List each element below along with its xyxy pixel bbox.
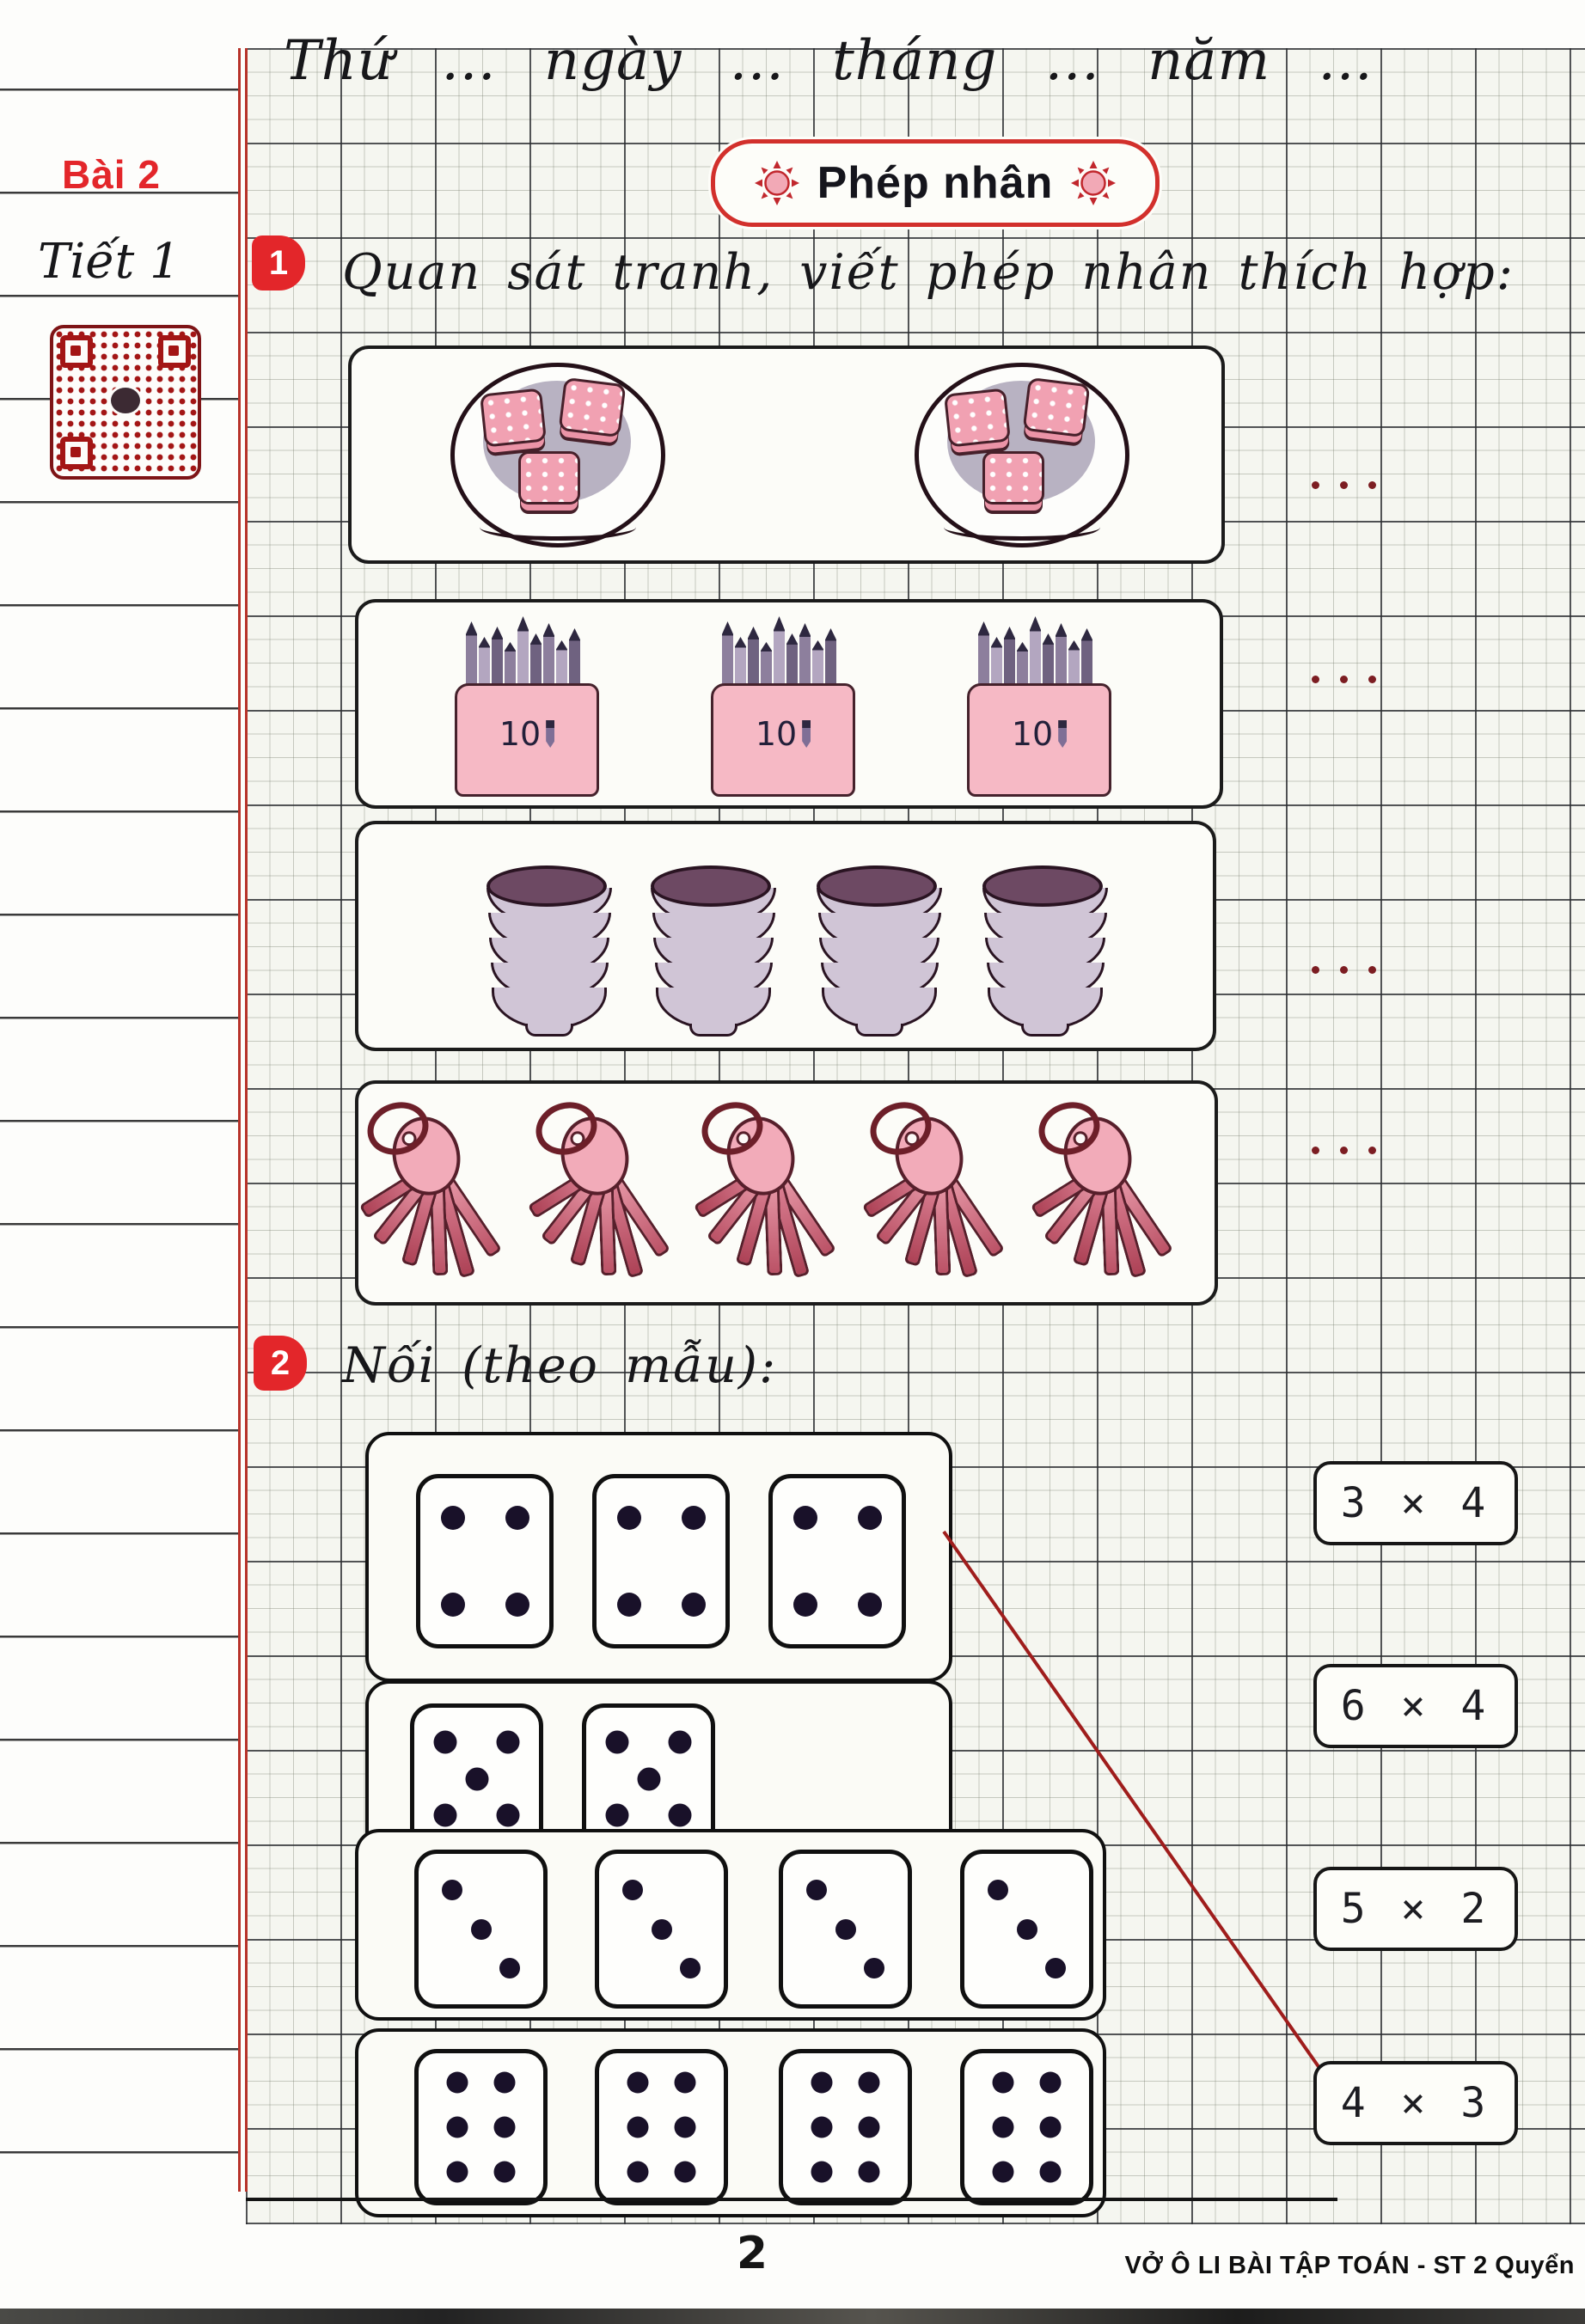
pencil-icon	[1030, 616, 1041, 685]
key-ring-group	[358, 1099, 522, 1281]
die-pip	[811, 2161, 832, 2182]
qr-finder-icon	[158, 335, 191, 368]
die	[414, 1850, 548, 2009]
bowl-opening	[982, 865, 1103, 907]
qr-center-logo	[108, 385, 143, 416]
pencil-box-label: 10	[713, 715, 853, 753]
die-pip	[675, 2072, 696, 2094]
pencil-icon	[825, 628, 836, 685]
die-pip	[494, 2161, 516, 2182]
die-pip	[496, 1730, 519, 1753]
bowl-stack	[482, 865, 611, 1034]
die-pip	[859, 2117, 880, 2138]
pencil-icon	[1056, 623, 1067, 685]
die	[779, 1850, 912, 2009]
answer-dots	[1312, 481, 1376, 489]
dice-row	[355, 1829, 1106, 2021]
pencil-box-label: 10	[970, 715, 1109, 753]
bowl	[656, 988, 771, 1030]
pencil-icon	[786, 633, 798, 685]
pencils-icon	[452, 611, 598, 685]
margin-red-line	[245, 48, 248, 2192]
pencil-glyph-icon	[1058, 720, 1067, 748]
answer-card-label: 3 × 4	[1341, 1479, 1491, 1527]
pencil-icon	[1043, 633, 1054, 685]
qr-finder-icon	[60, 437, 93, 469]
biscuit	[944, 388, 1011, 447]
sun-icon	[1070, 160, 1117, 206]
pencil-icon	[761, 642, 772, 685]
plate	[450, 363, 665, 547]
key-ring-group	[1030, 1099, 1193, 1281]
die-pip	[858, 1593, 882, 1617]
die	[592, 1474, 730, 1648]
die-pip	[793, 1593, 817, 1617]
pencil-box-group: 10	[439, 611, 611, 800]
exercise2-number-badge: 2	[254, 1336, 307, 1391]
exercise1-number-badge: 1	[252, 235, 305, 290]
dice-row	[365, 1432, 952, 1682]
die-pip	[806, 1880, 827, 1900]
die-pip	[442, 1880, 462, 1900]
lesson-label: Bài 2	[62, 151, 161, 198]
pencil-count-label: 10	[499, 715, 541, 753]
die-pip	[441, 1506, 465, 1530]
pencil-icon	[799, 623, 811, 685]
die-pip	[434, 1804, 457, 1827]
die-pip	[992, 2072, 1013, 2094]
key-ring-group	[527, 1099, 690, 1281]
biscuit	[518, 451, 580, 505]
die-pip	[1045, 1958, 1066, 1978]
pencil-icon	[978, 621, 989, 685]
pencil-icon	[774, 616, 785, 685]
pencil-icon	[517, 616, 529, 685]
die-pip	[505, 1506, 529, 1530]
pencil-icon	[1081, 628, 1092, 685]
exercise1-instruction: Quan sát tranh, viết phép nhân thích hợp…	[342, 244, 1515, 301]
die-pip	[617, 1506, 641, 1530]
die-pip	[505, 1593, 529, 1617]
pencil-box-group: 10	[952, 611, 1123, 800]
lesson-title: Phép nhân	[817, 157, 1054, 209]
die-pip	[465, 1767, 488, 1790]
die-pip	[675, 2117, 696, 2138]
die	[416, 1474, 554, 1648]
die-pip	[1040, 2161, 1062, 2182]
die-pip	[446, 2072, 468, 2094]
answer-card: 3 × 4	[1313, 1461, 1518, 1545]
bowl	[988, 988, 1103, 1030]
pencil-glyph-icon	[546, 720, 554, 748]
pencils-icon	[708, 611, 854, 685]
die-pip	[992, 2161, 1013, 2182]
die-pip	[858, 1506, 882, 1530]
exercise2-instruction: Nối (theo mẫu):	[342, 1337, 777, 1394]
die-pip	[617, 1593, 641, 1617]
die	[960, 1850, 1093, 2009]
die-pip	[668, 1730, 691, 1753]
footer-imprint: VỞ Ô LI BÀI TẬP TOÁN - ST 2 Quyển	[971, 2252, 1575, 2280]
pencil-box: 10	[455, 683, 599, 797]
pencil-icon	[556, 640, 567, 685]
key-ring-group	[861, 1099, 1025, 1281]
bowl-opening	[487, 865, 607, 907]
pencil-box: 10	[711, 683, 855, 797]
bowl-stack	[646, 865, 775, 1034]
scan-edge	[0, 2309, 1585, 2324]
pencil-icon	[748, 627, 759, 685]
answer-card: 4 × 3	[1313, 2061, 1518, 2145]
answer-dots	[1312, 966, 1376, 974]
workbook-page: Thứ ... ngày ... tháng ... năm ... Bài 2…	[0, 0, 1585, 2324]
die	[414, 2049, 548, 2205]
pencil-icon	[735, 637, 746, 685]
period-label: Tiết 1	[38, 234, 181, 290]
die-pip	[446, 2161, 468, 2182]
answer-card: 6 × 4	[1313, 1664, 1518, 1748]
die-pip	[811, 2072, 832, 2094]
bowl-opening	[651, 865, 771, 907]
biscuit	[1022, 377, 1090, 437]
margin-red-line	[238, 48, 241, 2192]
die-pip	[811, 2117, 832, 2138]
answer-card: 5 × 2	[1313, 1867, 1518, 1951]
die-pip	[441, 1593, 465, 1617]
pencil-icon	[1068, 640, 1080, 685]
die-pip	[682, 1506, 706, 1530]
die	[595, 1850, 728, 2009]
plate	[915, 363, 1129, 547]
die-pip	[622, 1880, 643, 1900]
die	[768, 1474, 906, 1648]
die-pip	[627, 2117, 648, 2138]
page-number: 2	[726, 2228, 778, 2279]
answer-dots	[1312, 676, 1376, 683]
picture-box-keys	[355, 1080, 1218, 1306]
pencil-icon	[722, 621, 733, 685]
die-pip	[988, 1880, 1008, 1900]
pencil-icon	[505, 642, 516, 685]
die-pip	[864, 1958, 884, 1978]
picture-box-bowls	[355, 821, 1216, 1051]
date-header: Thứ ... ngày ... tháng ... năm ...	[284, 29, 1487, 93]
die	[960, 2049, 1093, 2205]
pencil-count-label: 10	[756, 715, 797, 753]
pencil-box: 10	[967, 683, 1111, 797]
die-pip	[793, 1506, 817, 1530]
pencil-icon	[492, 627, 503, 685]
die-pip	[992, 2117, 1013, 2138]
die-pip	[499, 1958, 520, 1978]
answer-card-label: 4 × 3	[1341, 2079, 1491, 2127]
die-pip	[606, 1730, 629, 1753]
bowl-stack	[978, 865, 1107, 1034]
die-pip	[652, 1919, 672, 1940]
die-pip	[1017, 1919, 1037, 1940]
bowl-stack	[812, 865, 941, 1034]
die-pip	[471, 1919, 492, 1940]
pencil-icon	[1004, 627, 1015, 685]
die-pip	[434, 1730, 457, 1753]
pencil-icon	[1017, 642, 1028, 685]
pencil-icon	[812, 640, 823, 685]
pencil-icon	[530, 633, 542, 685]
die-pip	[496, 1804, 519, 1827]
die-pip	[675, 2161, 696, 2182]
die-pip	[859, 2161, 880, 2182]
die	[595, 2049, 728, 2205]
die-pip	[682, 1593, 706, 1617]
die-pip	[859, 2072, 880, 2094]
pencil-box-label: 10	[457, 715, 597, 753]
die	[779, 2049, 912, 2205]
answer-dots	[1312, 1147, 1376, 1154]
dice-row	[355, 2028, 1106, 2217]
pencil-icon	[543, 623, 554, 685]
answer-card-label: 5 × 2	[1341, 1885, 1491, 1933]
picture-box-plates	[348, 346, 1225, 564]
sun-icon	[754, 160, 800, 206]
lesson-title-pill: Phép nhân	[711, 139, 1160, 227]
grid-bottom-border	[246, 2198, 1337, 2201]
pencil-box-group: 10	[695, 611, 867, 800]
pencil-glyph-icon	[802, 720, 811, 748]
die-pip	[637, 1767, 660, 1790]
answer-card-label: 6 × 4	[1341, 1682, 1491, 1730]
key-ring-group	[693, 1099, 856, 1281]
pencil-icon	[991, 637, 1002, 685]
die-pip	[627, 2161, 648, 2182]
qr-code	[50, 325, 201, 480]
die-pip	[494, 2072, 516, 2094]
pencil-icon	[569, 628, 580, 685]
bowl	[492, 988, 607, 1030]
picture-box-pencils: 101010	[355, 599, 1223, 809]
pencils-icon	[964, 611, 1111, 685]
bowl-opening	[817, 865, 937, 907]
die-pip	[835, 1919, 856, 1940]
pencil-icon	[466, 621, 477, 685]
pencil-count-label: 10	[1012, 715, 1053, 753]
die-pip	[627, 2072, 648, 2094]
bowl	[822, 988, 937, 1030]
biscuit	[982, 451, 1044, 505]
die-pip	[680, 1958, 701, 1978]
qr-finder-icon	[60, 335, 93, 368]
die-pip	[1040, 2072, 1062, 2094]
pencil-icon	[479, 637, 490, 685]
die-pip	[606, 1804, 629, 1827]
die-pip	[1040, 2117, 1062, 2138]
die-pip	[668, 1804, 691, 1827]
biscuit	[480, 388, 547, 447]
die-pip	[446, 2117, 468, 2138]
biscuit	[558, 377, 626, 437]
die-pip	[494, 2117, 516, 2138]
